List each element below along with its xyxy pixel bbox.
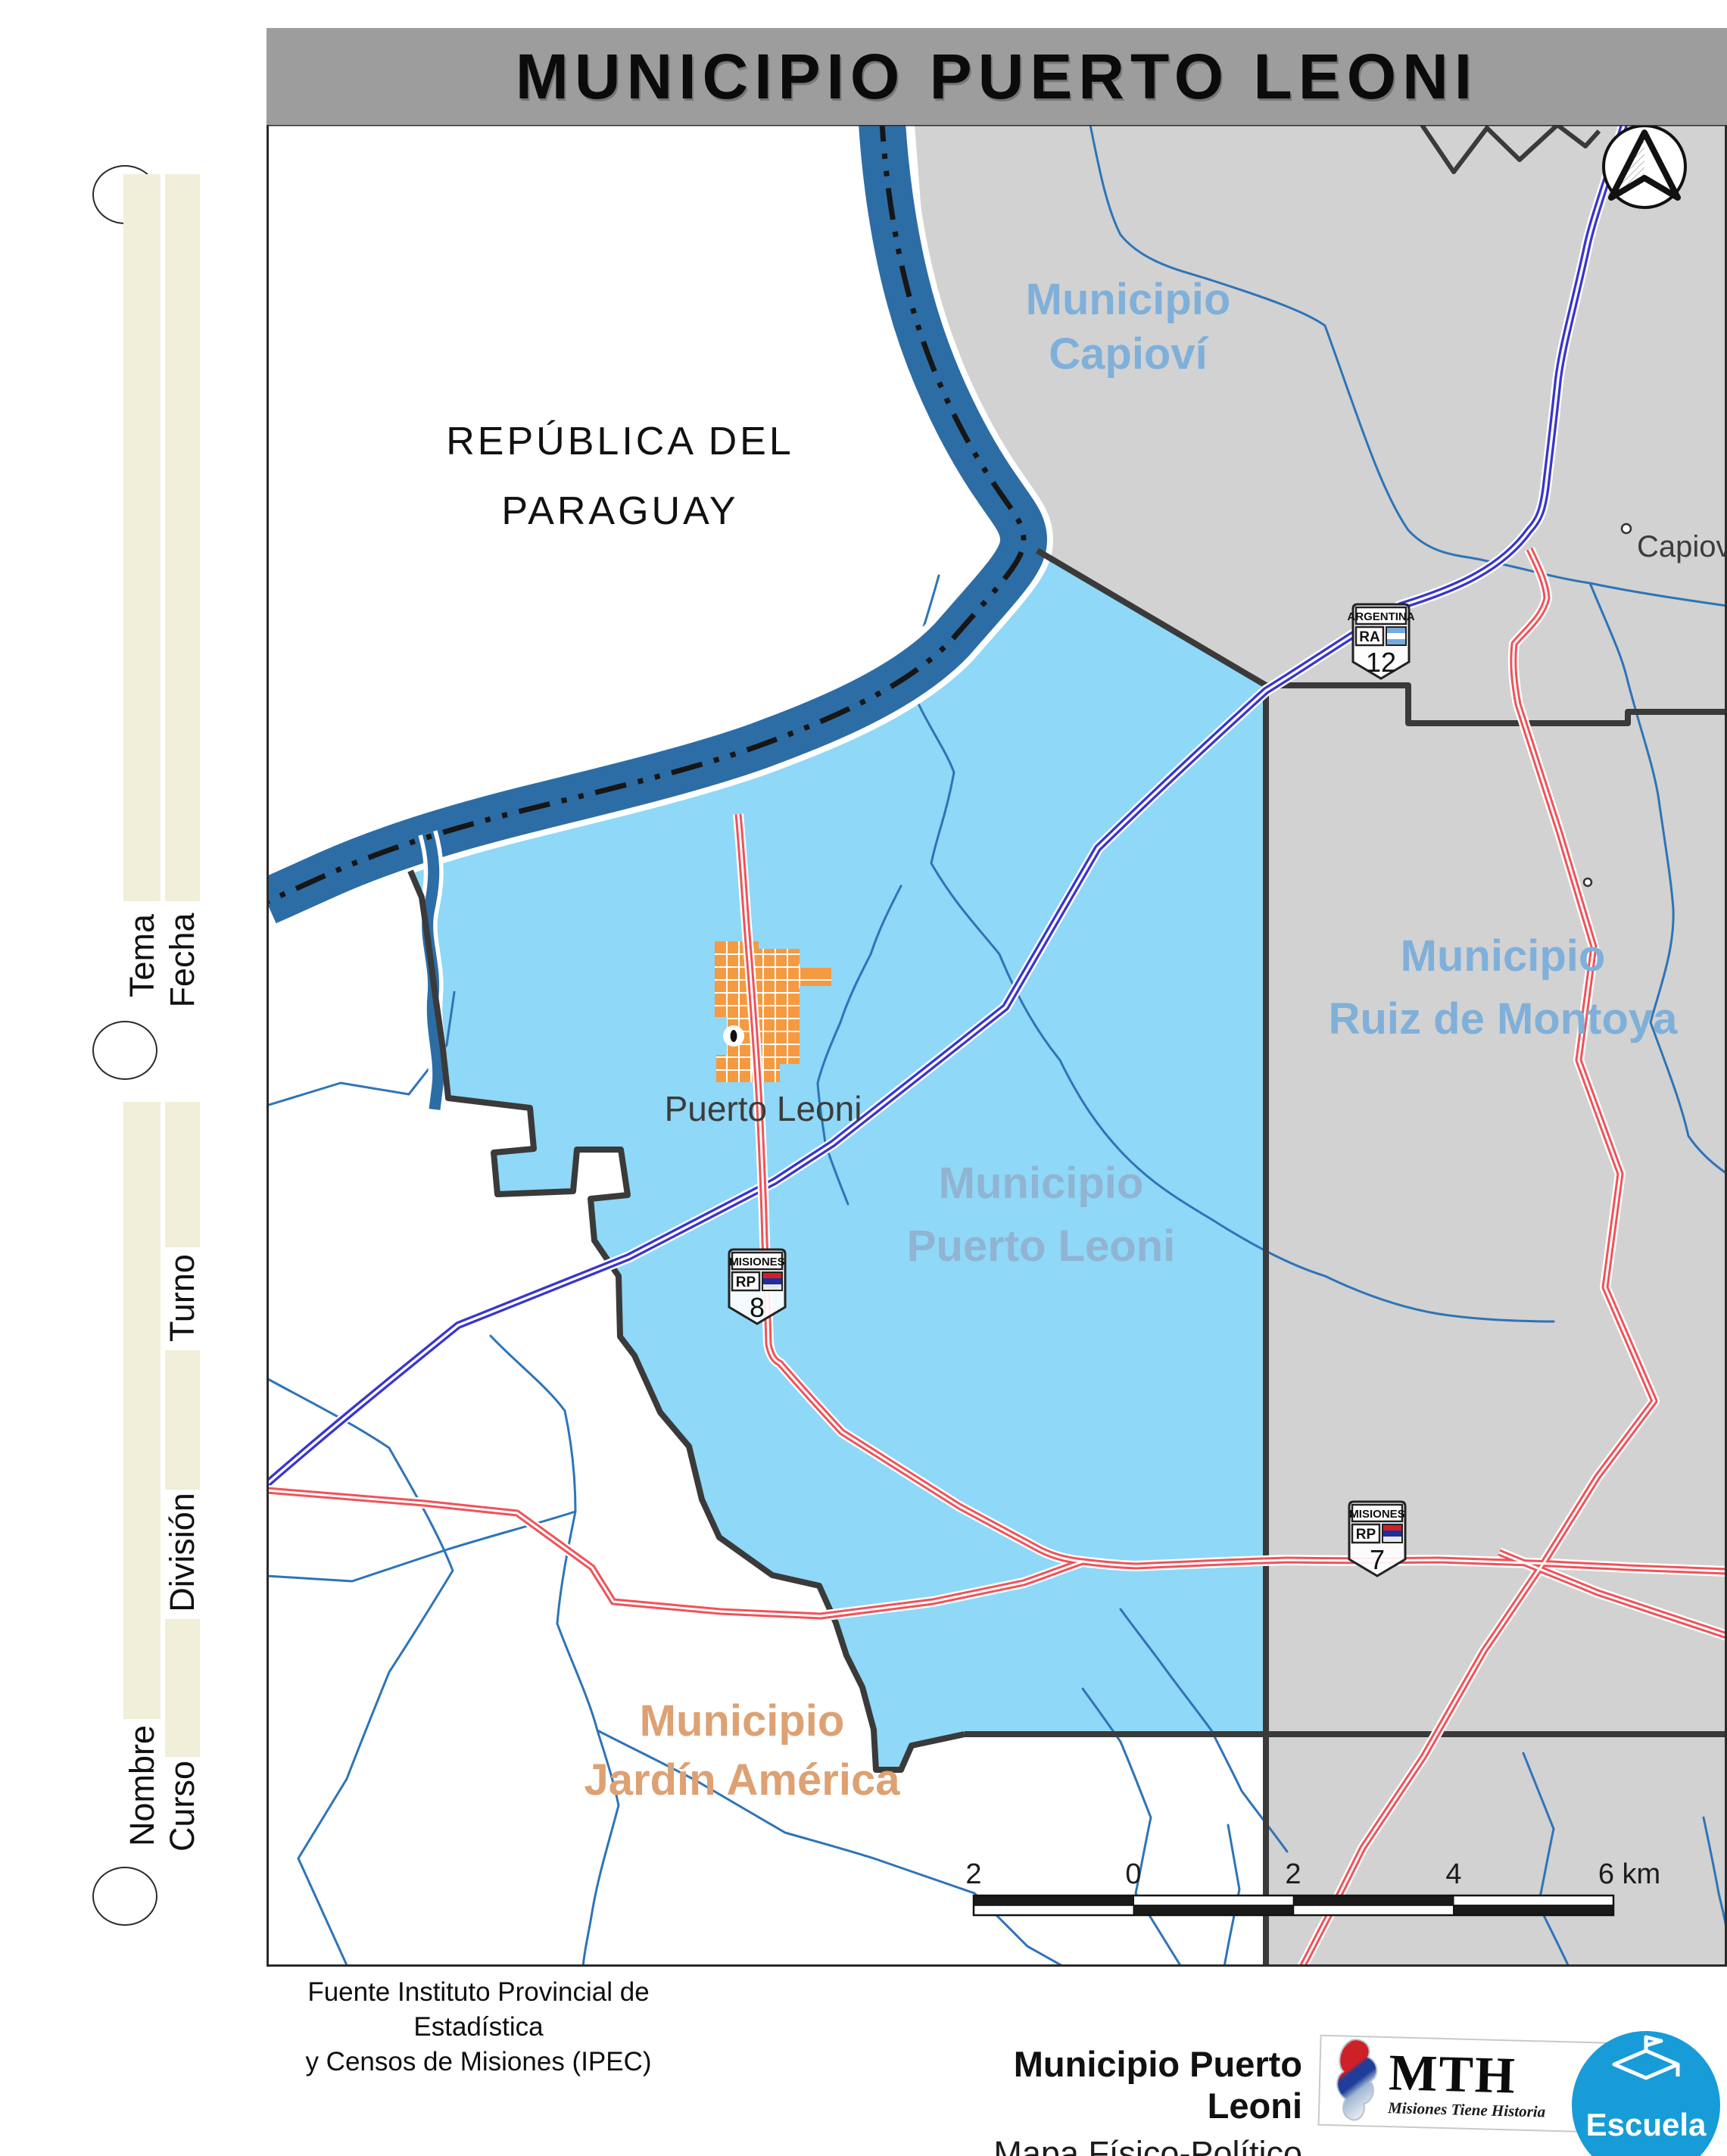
map-title: MUNICIPIO PUERTO LEONI	[516, 40, 1478, 114]
town-marker-small	[1584, 878, 1591, 886]
writing-bar-curso	[165, 1619, 200, 1757]
field-label-nombre: Nombre	[123, 1725, 162, 1846]
field-label-curso: Curso	[163, 1761, 202, 1852]
source-line-1: Fuente Instituto Provincial de Estadísti…	[267, 1975, 690, 2045]
field-label-fecha: Fecha	[163, 913, 202, 1007]
map-title-bar: MUNICIPIO PUERTO LEONI	[267, 28, 1727, 125]
credit-title: Municipio Puerto Leoni	[946, 2043, 1302, 2126]
scale-label-0: 2	[965, 1858, 981, 1890]
field-label-turno: Turno	[163, 1254, 202, 1342]
label-ruiz-1: Municipio	[1401, 931, 1606, 981]
shield-rp8-region: MISIONES	[729, 1256, 784, 1268]
shield-rp7-region: MISIONES	[1349, 1508, 1404, 1521]
mth-tagline: Misiones Tiene Historia	[1388, 2098, 1546, 2121]
misiones-flag-icon	[762, 1272, 782, 1290]
shield-rp8-number: 8	[750, 1292, 765, 1323]
escuela-label: Escuela	[1586, 2107, 1707, 2142]
misiones-flag-icon	[1383, 1524, 1402, 1543]
town-marker-capiovi	[1622, 524, 1631, 533]
field-label-tema: Tema	[123, 914, 162, 997]
map-sheet: Tema Fecha Turno División Nombre Curso M…	[0, 0, 1727, 2156]
label-ruiz-2: Ruiz de Montoya	[1329, 994, 1679, 1044]
shield-rp7-class: RP	[1356, 1527, 1376, 1543]
town-marker-puerto-leoni	[723, 1025, 744, 1047]
shield-ra12-number: 12	[1366, 647, 1396, 678]
label-pleoni-2: Puerto Leoni	[907, 1222, 1175, 1271]
label-paraguay-2: PARAGUAY	[501, 489, 738, 533]
label-town-capiovi: Capioví	[1637, 530, 1727, 563]
map-canvas: Municipio Capioví Municipio Ruiz de Mont…	[267, 125, 1727, 1967]
punch-hole-bottom	[92, 1867, 157, 1926]
scale-label-1: 0	[1125, 1858, 1141, 1890]
label-capiovi-2: Capioví	[1049, 329, 1208, 379]
writing-bar-nombre	[123, 1102, 161, 1719]
credit-block: Municipio Puerto Leoni Mapa Físico-Polít…	[946, 2043, 1302, 2156]
shield-ra12-region: ARGENTINA	[1347, 610, 1414, 623]
writing-bar-tema	[123, 174, 161, 901]
region-ruiz-de-montoya	[1266, 685, 1727, 1967]
label-pleoni-1: Municipio	[939, 1159, 1144, 1208]
argentina-flag-icon	[1386, 627, 1406, 645]
credit-subtitle: Mapa Físico-Político	[946, 2134, 1302, 2156]
source-note: Fuente Instituto Provincial de Estadísti…	[267, 1975, 690, 2080]
field-label-division: División	[163, 1493, 202, 1612]
label-capiovi-1: Municipio	[1026, 275, 1231, 324]
writing-bar-turno	[165, 1102, 200, 1247]
shield-rp8: MISIONES RP 8	[729, 1250, 785, 1324]
shield-rp8-class: RP	[736, 1275, 756, 1290]
label-paraguay-1: REPÚBLICA DEL	[446, 420, 794, 463]
label-town-puerto-leoni: Puerto Leoni	[665, 1089, 862, 1128]
shield-rp7-number: 7	[1370, 1544, 1385, 1575]
shield-ra12-class: RA	[1359, 629, 1380, 645]
writing-bar-division	[165, 1350, 200, 1490]
scale-label-2: 2	[1285, 1858, 1301, 1890]
scale-label-3: 4	[1445, 1858, 1461, 1890]
scale-label-4: 6 km	[1598, 1858, 1660, 1890]
mth-wordmark: MTH	[1389, 2047, 1548, 2101]
source-line-2: y Censos de Misiones (IPEC)	[267, 2045, 690, 2080]
label-jardin-1: Municipio	[640, 1696, 845, 1746]
escuela-badge: Escuela	[1563, 2028, 1727, 2156]
writing-bar-fecha	[165, 174, 200, 901]
shield-rp7: MISIONES RP 7	[1349, 1502, 1405, 1576]
misiones-province-icon	[1327, 2038, 1379, 2124]
label-jardin-2: Jardín América	[584, 1755, 901, 1805]
north-arrow-icon	[1604, 126, 1685, 207]
punch-hole-middle	[92, 1021, 157, 1080]
